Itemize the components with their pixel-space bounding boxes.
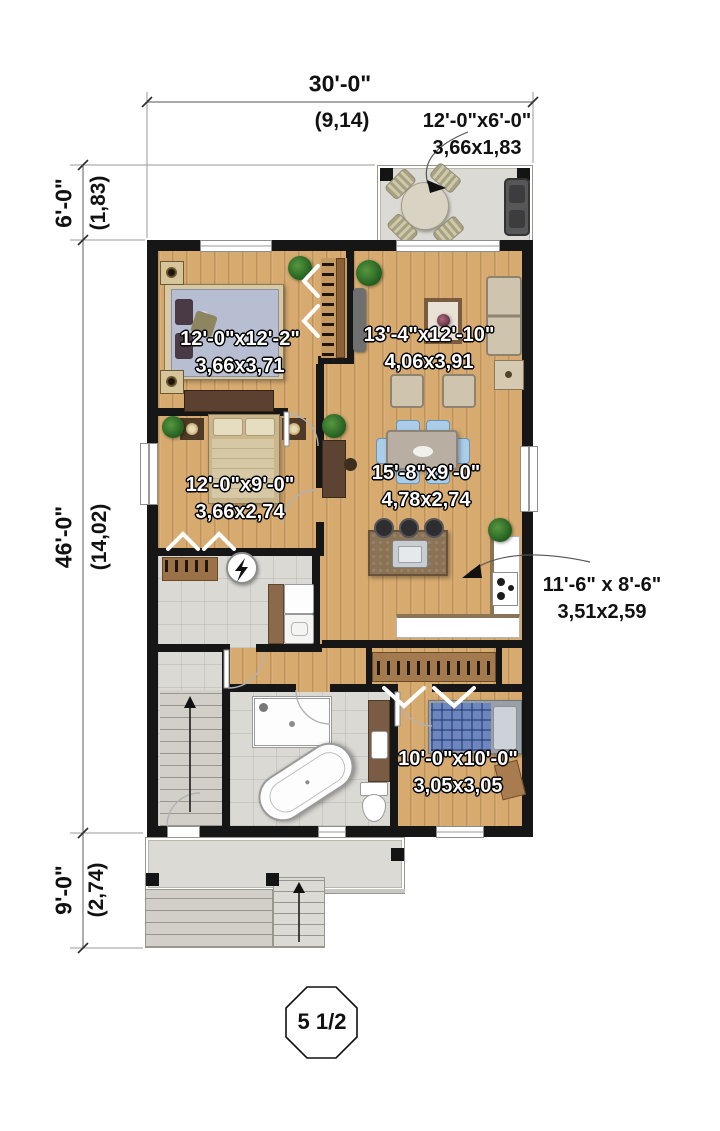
dim-porch-depth-metric: (2,74) — [85, 863, 109, 918]
water-heater — [226, 552, 258, 584]
bedroom3-size-metric: 3,05x3,05 — [398, 773, 518, 800]
bedroom2-window — [140, 443, 158, 505]
shower-drain — [289, 721, 295, 727]
closet3 — [372, 652, 496, 682]
bar-stool — [424, 518, 444, 538]
dryer-door — [291, 622, 308, 636]
dim-overall-width-metric: (9,14) — [315, 109, 370, 133]
shower — [252, 696, 332, 748]
porch-post — [146, 873, 159, 886]
bedroom3-label: 10'-0"x10'-0" 3,05x3,05 — [398, 746, 518, 800]
grill-lid — [509, 210, 525, 228]
porch-edge — [325, 889, 405, 894]
bed3-pillow — [493, 706, 517, 750]
porch-steps-left — [145, 889, 273, 948]
living-size-metric: 4,06x3,91 — [364, 349, 495, 376]
wall-bed3-top — [432, 684, 522, 692]
burner — [508, 585, 514, 591]
dim-deck-depth-imperial: 6'-0" — [51, 178, 78, 228]
bed2-pillow — [245, 418, 275, 436]
living-label: 13'-4"x12'-10" 4,06x3,91 — [364, 322, 495, 376]
kitchen-size-imperial: 11'-6" x 8'-6" — [543, 572, 662, 599]
staircase — [160, 690, 222, 826]
cooktop — [492, 572, 518, 606]
washer — [284, 584, 314, 614]
porch-stair-center — [273, 877, 325, 948]
speaker-cone — [166, 376, 177, 387]
bed1-pillow — [175, 299, 193, 325]
wall-entry-bottom-right — [256, 644, 322, 652]
desk — [322, 440, 346, 498]
dining-window — [520, 446, 538, 512]
dining-size-metric: 4,78x2,74 — [372, 487, 481, 514]
porch-post — [391, 848, 404, 861]
badge-label: 5 1/2 — [298, 1009, 347, 1035]
island-sink — [392, 540, 428, 568]
burner — [497, 578, 505, 586]
closet1-rod — [336, 258, 345, 358]
dim-house-depth-metric: (14,02) — [88, 504, 112, 571]
sink-basin — [398, 546, 422, 563]
entry-closet — [162, 557, 218, 581]
bedroom1-size-metric: 3,66x3,71 — [180, 353, 300, 380]
living-patio-door — [396, 240, 500, 252]
porch-post — [266, 873, 279, 886]
vanity — [368, 700, 390, 782]
bedroom3-size-imperial: 10'-0"x10'-0" — [398, 746, 518, 773]
bedroom1-window — [200, 240, 272, 252]
desk-chair — [344, 458, 357, 471]
vanity-sink — [371, 731, 388, 759]
armchair — [442, 374, 476, 408]
closet3-hangers — [377, 661, 491, 675]
wall-stairs-right — [222, 644, 230, 826]
bed1-dresser — [184, 390, 274, 412]
plant — [356, 260, 382, 286]
platter — [412, 445, 434, 458]
laundry-cabinet — [268, 584, 284, 644]
entry-closet-hangers — [165, 560, 215, 572]
bedroom1-label: 12'-0"x12'-2" 3,66x3,71 — [180, 326, 300, 380]
dim-overall-width-imperial: 30'-0" — [309, 71, 371, 98]
burner — [497, 592, 505, 600]
shower-head — [259, 703, 268, 712]
plant — [322, 414, 346, 438]
wall-bath-bed3 — [390, 684, 398, 826]
floor-plan-canvas: 30'-0" (9,14) 6'-0" (1,83) 46'-0" (14,02… — [0, 0, 720, 1131]
bed2-pillow — [213, 418, 243, 436]
table-knob — [505, 371, 512, 378]
lamp — [288, 423, 300, 435]
deck-size-metric: 3,66x1,83 — [423, 135, 532, 162]
plant — [162, 416, 184, 438]
deck-size-imperial: 12'-0"x6'-0" — [423, 108, 532, 135]
grill-lid — [509, 185, 525, 203]
bbq-grill — [504, 178, 530, 236]
speaker-cone — [166, 267, 177, 278]
dim-deck-depth-metric: (1,83) — [87, 176, 111, 231]
bedroom2-size-imperial: 12'-0"x9'-0" — [186, 472, 295, 499]
wall-closet3-top — [322, 640, 522, 648]
living-size-imperial: 13'-4"x12'-10" — [364, 322, 495, 349]
deck-label: 12'-0"x6'-0" 3,66x1,83 — [423, 108, 532, 162]
kitchen-label: 11'-6" x 8'-6" 3,51x2,59 — [543, 572, 662, 626]
closet1-hangers — [322, 260, 334, 356]
wall-closet3-right — [496, 648, 502, 684]
wall-entry-bottom-left — [158, 644, 224, 652]
bedroom2-label: 12'-0"x9'-0" 3,66x2,74 — [186, 472, 295, 526]
speaker — [160, 261, 184, 285]
dining-size-imperial: 15'-8"x9'-0" — [372, 460, 481, 487]
bedroom3-window — [436, 826, 484, 838]
nightstand — [282, 418, 306, 440]
bar-stool — [374, 518, 394, 538]
bed3-mattress — [431, 703, 491, 751]
dryer — [284, 614, 314, 644]
dim-porch-depth-imperial: 9'-0" — [51, 865, 78, 915]
side-table — [494, 360, 524, 390]
kitchen-size-metric: 3,51x2,59 — [543, 599, 662, 626]
wall-bath-top-right — [330, 684, 390, 692]
dim-house-depth-imperial: 46'-0" — [51, 506, 78, 568]
lamp — [186, 423, 198, 435]
armchair — [390, 374, 424, 408]
dining-label: 15'-8"x9'-0" 4,78x2,74 — [372, 460, 481, 514]
kitchen-counter-bottom — [396, 614, 520, 638]
bar-stool — [399, 518, 419, 538]
bedroom2-size-metric: 3,66x2,74 — [186, 499, 295, 526]
bedroom1-size-imperial: 12'-0"x12'-2" — [180, 326, 300, 353]
plant — [288, 256, 312, 280]
wall-stub — [316, 364, 324, 416]
wall-bath-top-left — [230, 684, 296, 692]
plant — [488, 518, 512, 542]
